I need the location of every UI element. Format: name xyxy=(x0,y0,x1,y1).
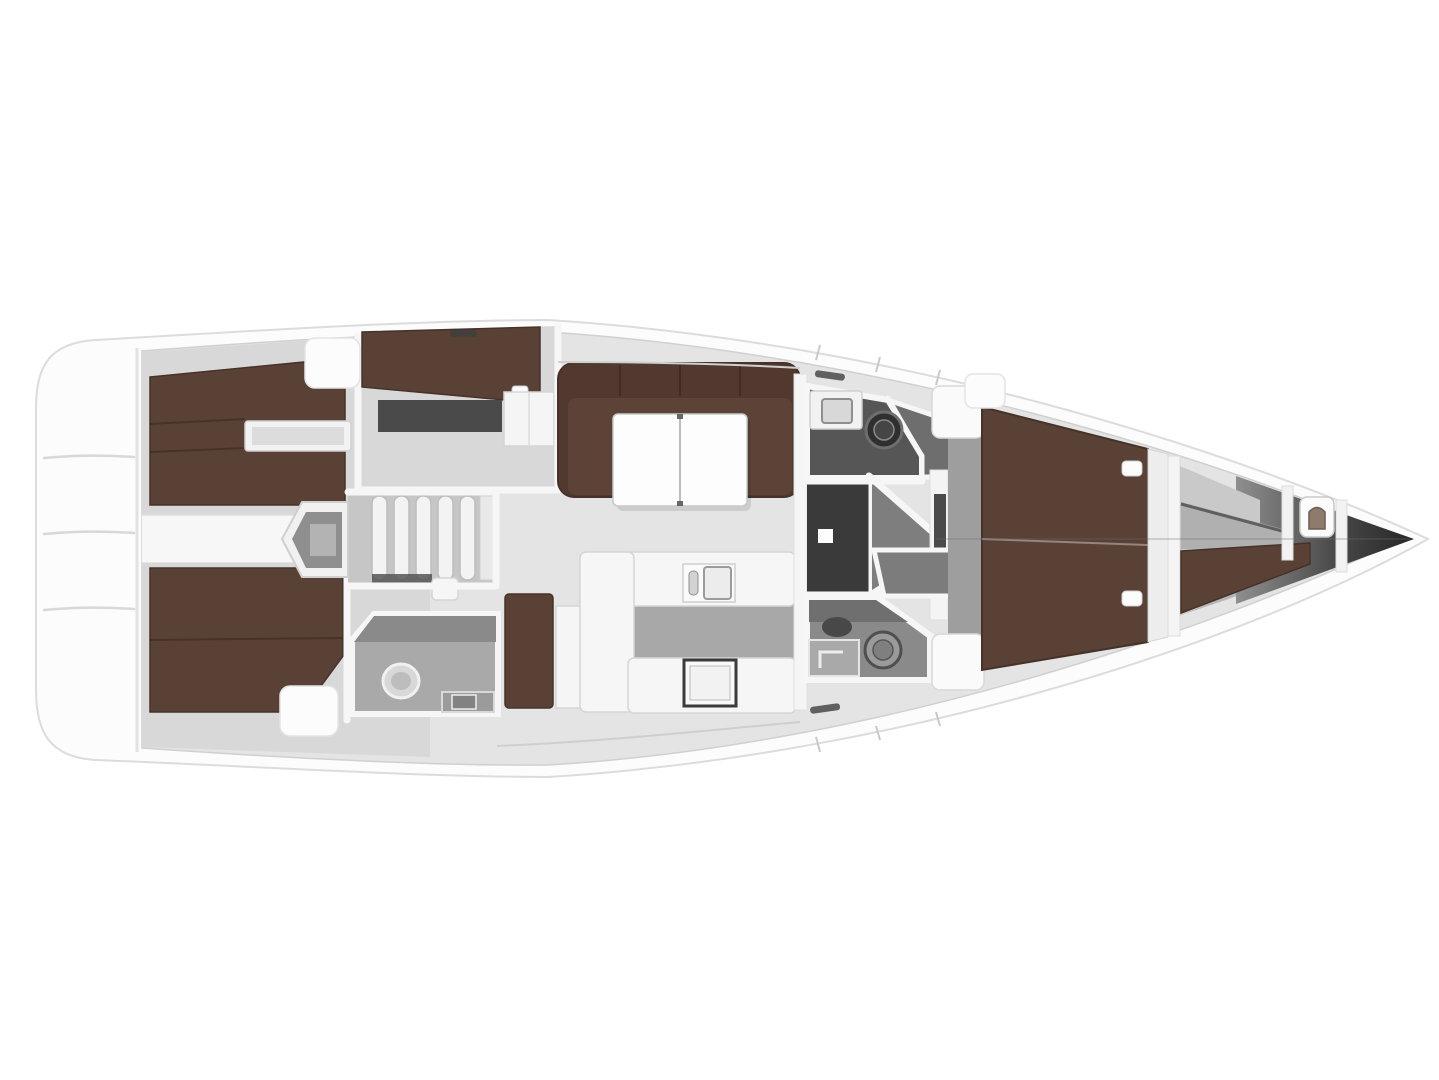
berth-footboard xyxy=(1148,449,1168,642)
step-landing xyxy=(480,496,494,580)
washbasin xyxy=(452,695,476,709)
floor-plan-canvas xyxy=(0,0,1439,1080)
bow-bulkhead xyxy=(1336,500,1347,572)
bunk-cabin xyxy=(362,326,558,490)
walkway xyxy=(142,515,302,563)
nav-seat xyxy=(505,594,553,708)
toilet-seat xyxy=(873,640,893,660)
fore-bulkhead xyxy=(1168,456,1180,636)
walkway-floor xyxy=(142,515,302,563)
cockpit-locker xyxy=(280,686,338,736)
galley-counter-left xyxy=(580,552,634,712)
bow-wc-icon xyxy=(1309,508,1325,530)
bow-bulkhead xyxy=(1282,486,1293,560)
washbasin-dark xyxy=(822,617,852,637)
owner-cabin-floor xyxy=(948,436,986,644)
berth-shelf-inner xyxy=(252,427,344,445)
step-tread xyxy=(372,496,387,580)
cockpit-locker xyxy=(305,338,360,388)
deck-pad xyxy=(965,374,1005,408)
nightstand xyxy=(932,634,984,690)
deck-hatch xyxy=(450,330,477,337)
salon xyxy=(558,363,800,511)
aft-head xyxy=(352,614,498,714)
shower-starboard-floor xyxy=(874,550,958,596)
step-tread xyxy=(438,496,453,580)
aft-head-floor-dark xyxy=(354,616,496,642)
faucet xyxy=(689,571,698,595)
step-tread xyxy=(394,496,409,580)
stove-top xyxy=(690,666,730,700)
toilet-seat xyxy=(874,420,894,440)
step-tread xyxy=(416,496,431,580)
hanging-locker xyxy=(378,400,502,432)
table-hinge xyxy=(677,501,683,506)
galley-floor xyxy=(630,604,795,660)
door-handle-plate xyxy=(818,529,833,543)
galley xyxy=(580,552,796,713)
table-hinge xyxy=(677,414,683,419)
washbasin xyxy=(822,399,852,423)
pillow xyxy=(1122,461,1142,476)
yacht-floor-plan-page xyxy=(0,0,1439,1080)
pillow xyxy=(1122,591,1142,606)
sink-basin xyxy=(704,567,731,599)
step-tread xyxy=(460,496,475,580)
toilet-seat xyxy=(391,672,411,690)
corridor-floor xyxy=(807,482,870,592)
engine-hatch xyxy=(310,524,336,556)
washbasin-counter xyxy=(809,640,859,676)
